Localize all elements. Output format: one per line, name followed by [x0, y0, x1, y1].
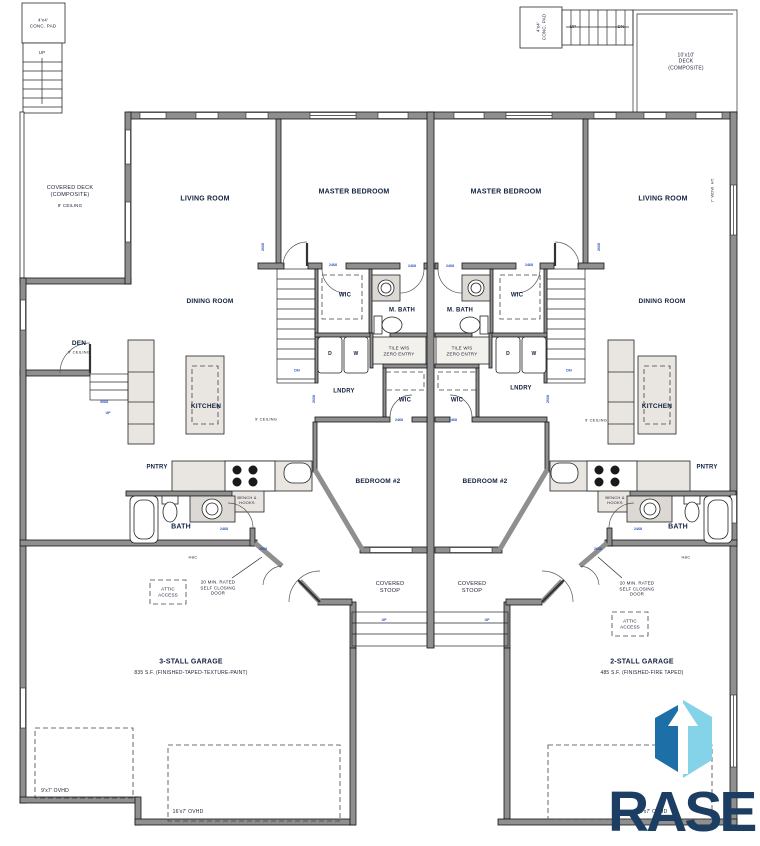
garage-left-title: 3-STALL GARAGE	[159, 659, 223, 668]
right-m-bath-label: M. BATH	[447, 307, 473, 315]
door-size-tag: 2468	[329, 263, 337, 267]
left-wic-label: WIC	[339, 292, 351, 300]
right-dryer-label: D	[506, 351, 510, 357]
stairs-right-dn-label: DN	[618, 24, 625, 30]
left-pntry-label: PNTRY	[146, 464, 167, 472]
left-living-room-label: LIVING ROOM	[180, 196, 229, 205]
door-size-tag: 2468	[220, 527, 228, 531]
garage-left-door-large-label: 16'x7' OVHD	[173, 809, 204, 815]
left-bench-hooks-label: BENCH & HOOKS	[237, 495, 256, 505]
right-kitchen-label: KITCHEN	[642, 403, 672, 411]
covered-deck-label: COVERED DECK (COMPOSITE)	[47, 185, 93, 199]
right-stoop-up-label: UP	[485, 618, 490, 622]
door-size-tag: 2468	[395, 418, 403, 422]
covered-deck-ceiling-label: 9' CEILING	[58, 203, 83, 209]
stairs-left-up-label: UP	[39, 50, 46, 56]
right-ceiling-label: 9' CEILING	[585, 418, 607, 423]
left-kitchen-label: KITCHEN	[191, 403, 221, 411]
door-size-tag: 2668	[259, 547, 267, 551]
deck-right-label: 10'x10' DECK (COMPOSITE)	[668, 53, 704, 72]
door-size-tag: 2668	[546, 395, 550, 403]
door-size-tag: 2468	[408, 264, 416, 268]
rase-logo-icon	[655, 700, 712, 778]
right-wic-label: WIC	[511, 292, 523, 300]
left-hall-wic-label: WIC	[399, 397, 411, 405]
left-shower-label: TILE W/S ZERO ENTRY	[384, 345, 415, 356]
left-stoop-label: COVERED STOOP	[376, 581, 405, 595]
right-master-bedroom-label: MASTER BEDROOM	[471, 189, 542, 198]
den-ceiling-label: 9' CEILING	[68, 350, 90, 355]
window-height-note: 7' WDW. HT.	[710, 178, 715, 203]
left-dryer-label: D	[328, 351, 332, 357]
right-pntry-label: PNTRY	[696, 464, 717, 472]
door-size-tag: 2468	[449, 418, 457, 422]
left-bedroom2-label: BEDROOM #2	[356, 478, 401, 486]
conc-pad-right-label: 4'x4' CONC. PAD	[535, 14, 546, 40]
floor-plan-page: 4'x4' CONC. PAD UP COVERED DECK (COMPOSI…	[0, 0, 760, 846]
door-size-tag: 2668	[312, 395, 316, 403]
right-bedroom2-label: BEDROOM #2	[463, 478, 508, 486]
door-size-tag: 2668	[261, 243, 265, 251]
garage-left-door-small-label: 9'x7' OVHD	[41, 788, 69, 794]
left-rated-door-note: 20 MIN. RATED SELF CLOSING DOOR	[200, 580, 235, 597]
right-stairs-dn-label: DN	[566, 369, 571, 374]
right-bench-hooks-label: BENCH & HOOKS	[605, 495, 624, 505]
left-m-bath-label: M. BATH	[389, 307, 415, 315]
right-hall-wic-label: WIC	[451, 397, 463, 405]
left-hc-label: H&C	[188, 555, 197, 560]
left-washer-label: W	[354, 351, 359, 357]
den-up-label: UP	[106, 411, 111, 415]
right-washer-label: W	[532, 351, 537, 357]
right-shower-label: TILE W/S ZERO ENTRY	[447, 345, 478, 356]
right-attic-access-label: ATTIC ACCESS	[620, 618, 640, 629]
left-stoop-up-label: UP	[382, 618, 387, 622]
rase-logo-text: RASE	[608, 784, 754, 841]
right-rated-door-note: 20 MIN. RATED SELF CLOSING DOOR	[619, 581, 654, 598]
left-ceiling-label: 9' CEILING	[255, 417, 277, 422]
door-size-tag: 2668	[594, 547, 602, 551]
left-dining-room-label: DINING ROOM	[187, 298, 234, 306]
right-lndry-label: LNDRY	[510, 385, 531, 393]
left-master-bedroom-label: MASTER BEDROOM	[319, 189, 390, 198]
right-bath-label: BATH	[668, 524, 688, 533]
right-stoop-label: COVERED STOOP	[458, 581, 487, 595]
door-size-tag: 2468	[446, 264, 454, 268]
garage-left-area: 835 S.F. (FINISHED-TAPED-TEXTURE-PAINT)	[134, 670, 247, 676]
door-size-tag: 2468	[634, 527, 642, 531]
den-label: DEN	[72, 340, 86, 348]
right-dining-room-label: DINING ROOM	[639, 298, 686, 306]
left-lndry-label: LNDRY	[333, 388, 354, 396]
right-hc-label: H&C	[681, 555, 690, 560]
left-attic-access-label: ATTIC ACCESS	[158, 586, 178, 597]
door-size-tag: 2468	[525, 263, 533, 267]
left-bath-label: BATH	[171, 524, 191, 533]
conc-pad-left-label: 4'x4' CONC. PAD	[30, 17, 56, 28]
door-size-tag: 2668	[597, 243, 601, 251]
floor-plan-drawing	[0, 0, 760, 846]
garage-right-area: 485 S.F. (FINISHED-FIRE TAPED)	[600, 670, 683, 676]
left-stairs-dn-label: DN	[294, 369, 299, 374]
right-living-room-label: LIVING ROOM	[638, 196, 687, 205]
stairs-right-up-label: UP	[570, 24, 577, 30]
garage-right-title: 2-STALL GARAGE	[610, 659, 674, 668]
door-size-tag: 3068	[100, 400, 108, 404]
